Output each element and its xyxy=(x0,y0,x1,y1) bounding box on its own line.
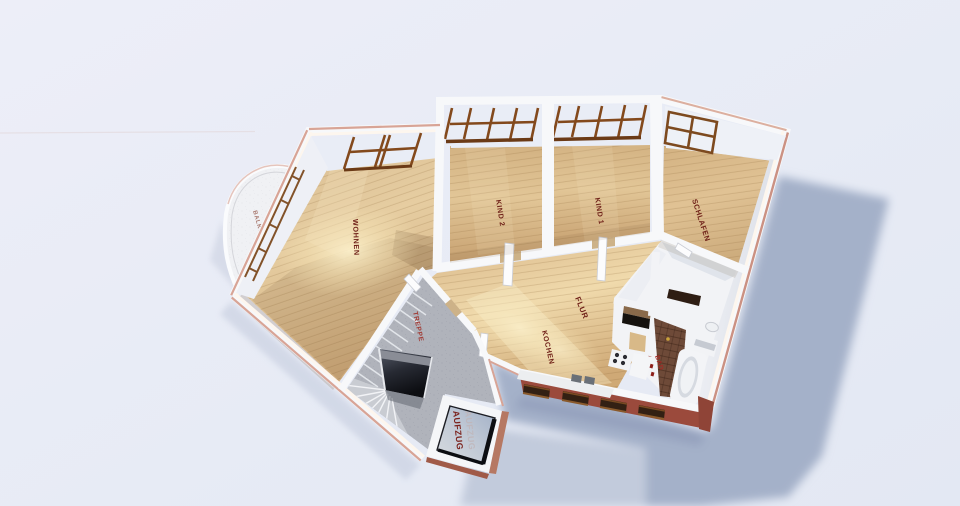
svg-text:WOHNEN: WOHNEN xyxy=(351,219,361,256)
